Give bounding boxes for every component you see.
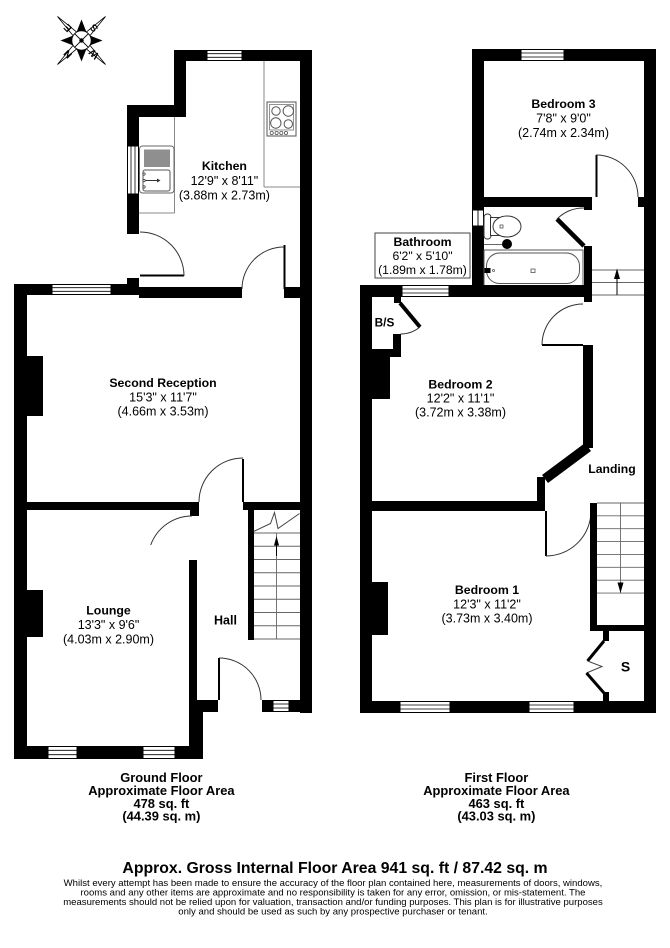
svg-text:(4.66m x 3.53m): (4.66m x 3.53m)	[117, 405, 208, 419]
svg-text:12'2" x 11'1": 12'2" x 11'1"	[427, 392, 495, 406]
svg-text:Kitchen: Kitchen	[202, 159, 247, 173]
svg-text:Landing: Landing	[588, 462, 635, 476]
svg-text:Lounge: Lounge	[86, 604, 131, 618]
svg-text:(44.39 sq. m): (44.39 sq. m)	[122, 809, 200, 824]
svg-text:(3.88m x 2.73m): (3.88m x 2.73m)	[179, 189, 270, 203]
svg-text:Bedroom 1: Bedroom 1	[455, 583, 519, 597]
svg-text:12'9" x 8'11": 12'9" x 8'11"	[191, 174, 259, 188]
svg-text:15'3" x 11'7": 15'3" x 11'7"	[129, 390, 197, 404]
svg-text:S: S	[621, 659, 630, 675]
svg-text:13'3" x 9'6": 13'3" x 9'6"	[78, 618, 140, 632]
svg-text:(3.73m x 3.40m): (3.73m x 3.40m)	[441, 612, 532, 626]
svg-text:12'3" x 11'2": 12'3" x 11'2"	[453, 597, 521, 611]
svg-text:(3.72m x 3.38m): (3.72m x 3.38m)	[415, 406, 506, 420]
svg-text:Bathroom: Bathroom	[393, 235, 451, 249]
svg-text:Bedroom 2: Bedroom 2	[428, 377, 492, 391]
svg-text:Hall: Hall	[214, 614, 237, 628]
svg-text:(43.03 sq. m): (43.03 sq. m)	[457, 809, 535, 824]
svg-text:Bedroom 3: Bedroom 3	[531, 97, 595, 111]
svg-text:Approx. Gross Internal Floor A: Approx. Gross Internal Floor Area 941 sq…	[122, 860, 547, 877]
svg-text:only and should be used as suc: only and should be used as such by any p…	[178, 907, 487, 918]
svg-text:(2.74m x 2.34m): (2.74m x 2.34m)	[518, 126, 609, 140]
svg-text:(1.89m x 1.78m): (1.89m x 1.78m)	[378, 263, 467, 277]
svg-text:B/S: B/S	[375, 316, 395, 330]
svg-text:6'2" x 5'10": 6'2" x 5'10"	[392, 249, 452, 263]
svg-text:(4.03m x 2.90m): (4.03m x 2.90m)	[63, 633, 154, 647]
svg-text:7'8" x 9'0": 7'8" x 9'0"	[536, 112, 591, 126]
svg-text:Second Reception: Second Reception	[109, 376, 216, 390]
